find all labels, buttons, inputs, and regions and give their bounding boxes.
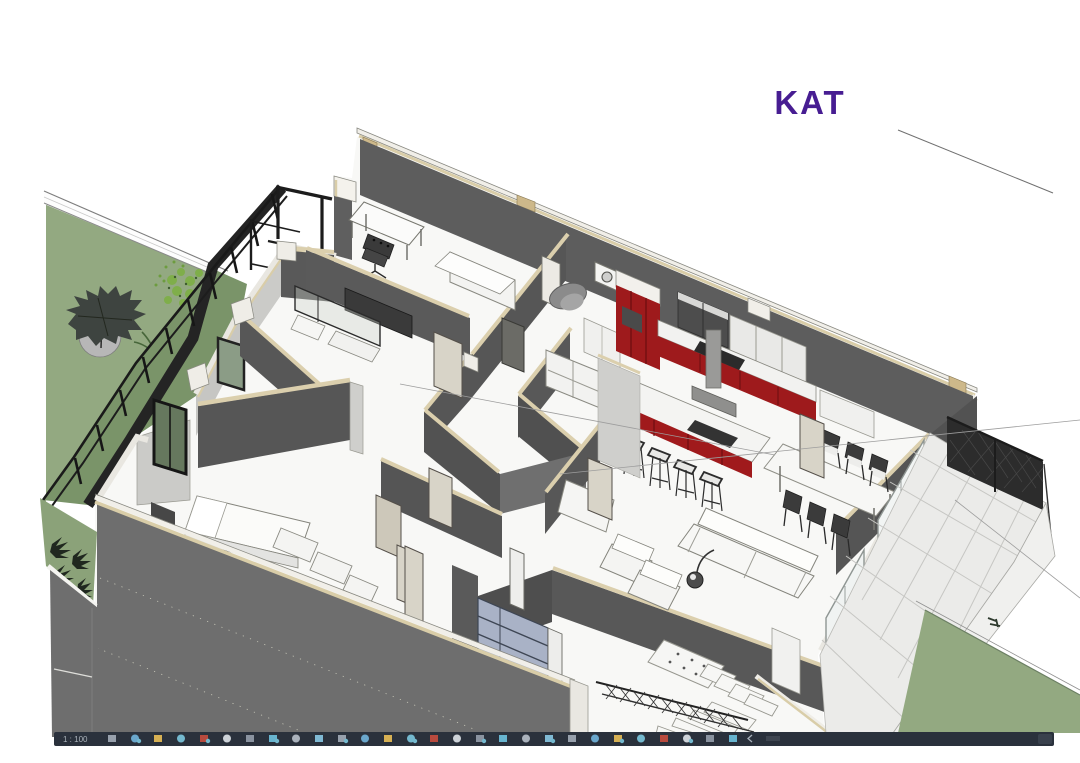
- svg-text:1 : 100: 1 : 100: [63, 735, 88, 744]
